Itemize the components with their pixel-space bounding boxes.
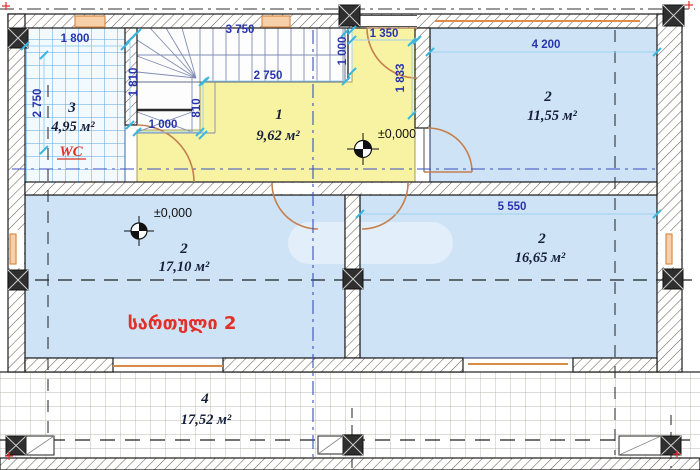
wc-room-area: 4,95 м²	[50, 119, 95, 135]
window-top-2	[262, 16, 290, 27]
window-left	[10, 234, 16, 264]
wall-entry-right	[415, 28, 430, 128]
dim-stair-tread: 810	[191, 98, 203, 117]
hall-area: 9,62 м²	[256, 128, 300, 144]
wall-bottom-2	[223, 358, 463, 372]
dim-stair-bottom: 1 000	[149, 119, 178, 131]
entry-opening	[352, 15, 417, 27]
dim-entry-depth: 1 833	[395, 64, 407, 93]
dim-entry-side: 1 000	[337, 37, 349, 66]
hall-number: 1	[275, 107, 283, 123]
door-opening-left	[272, 183, 318, 194]
dim-stair-depth: 1 810	[128, 68, 140, 97]
dim-entry-width: 1 350	[370, 28, 399, 40]
terrace-number: 4	[200, 391, 209, 407]
dim-wc-depth: 2 750	[32, 89, 44, 118]
dim-room-mr-width: 5 550	[498, 201, 527, 213]
room-tr-area: 11,55 м²	[527, 108, 577, 124]
wall-terrace-bottom	[0, 458, 700, 470]
floor-plan-svg: 1 800 2 750 3 750 2 750 1 810 810 1 000 …	[0, 0, 700, 470]
room-ml-area: 17,10 м²	[159, 259, 210, 275]
door-opening-right	[362, 183, 408, 194]
window-right	[666, 234, 672, 264]
room-top-right-fill	[430, 28, 657, 182]
level-text-room: ±0,000	[154, 206, 192, 220]
wc-room-number: 3	[67, 100, 76, 116]
room-ml-number: 2	[179, 241, 188, 257]
room-tr-number: 2	[543, 89, 552, 105]
window-top-1	[75, 16, 105, 27]
room-mr-area: 16,65 м²	[515, 250, 566, 266]
floor-plan: 1 800 2 750 3 750 2 750 1 810 810 1 000 …	[0, 0, 700, 470]
room-mid-right-fill	[360, 195, 657, 358]
dim-hall-width: 2 750	[254, 70, 283, 82]
dim-stair-run: 3 750	[226, 24, 255, 36]
wall-right	[657, 14, 682, 372]
room-mr-number: 2	[537, 231, 546, 247]
dim-room-tr-width: 4 200	[532, 39, 561, 51]
wc-label: WC	[59, 144, 83, 160]
wall-left	[8, 14, 25, 372]
dim-wc-width: 1 800	[61, 33, 90, 45]
floor-label: სართული 2	[128, 313, 237, 334]
wall-mid	[25, 182, 657, 195]
terrace-area-label: 17,52 м²	[181, 412, 232, 428]
wall-bottom-1	[25, 358, 113, 372]
level-text-hall: ±0,000	[378, 127, 416, 141]
